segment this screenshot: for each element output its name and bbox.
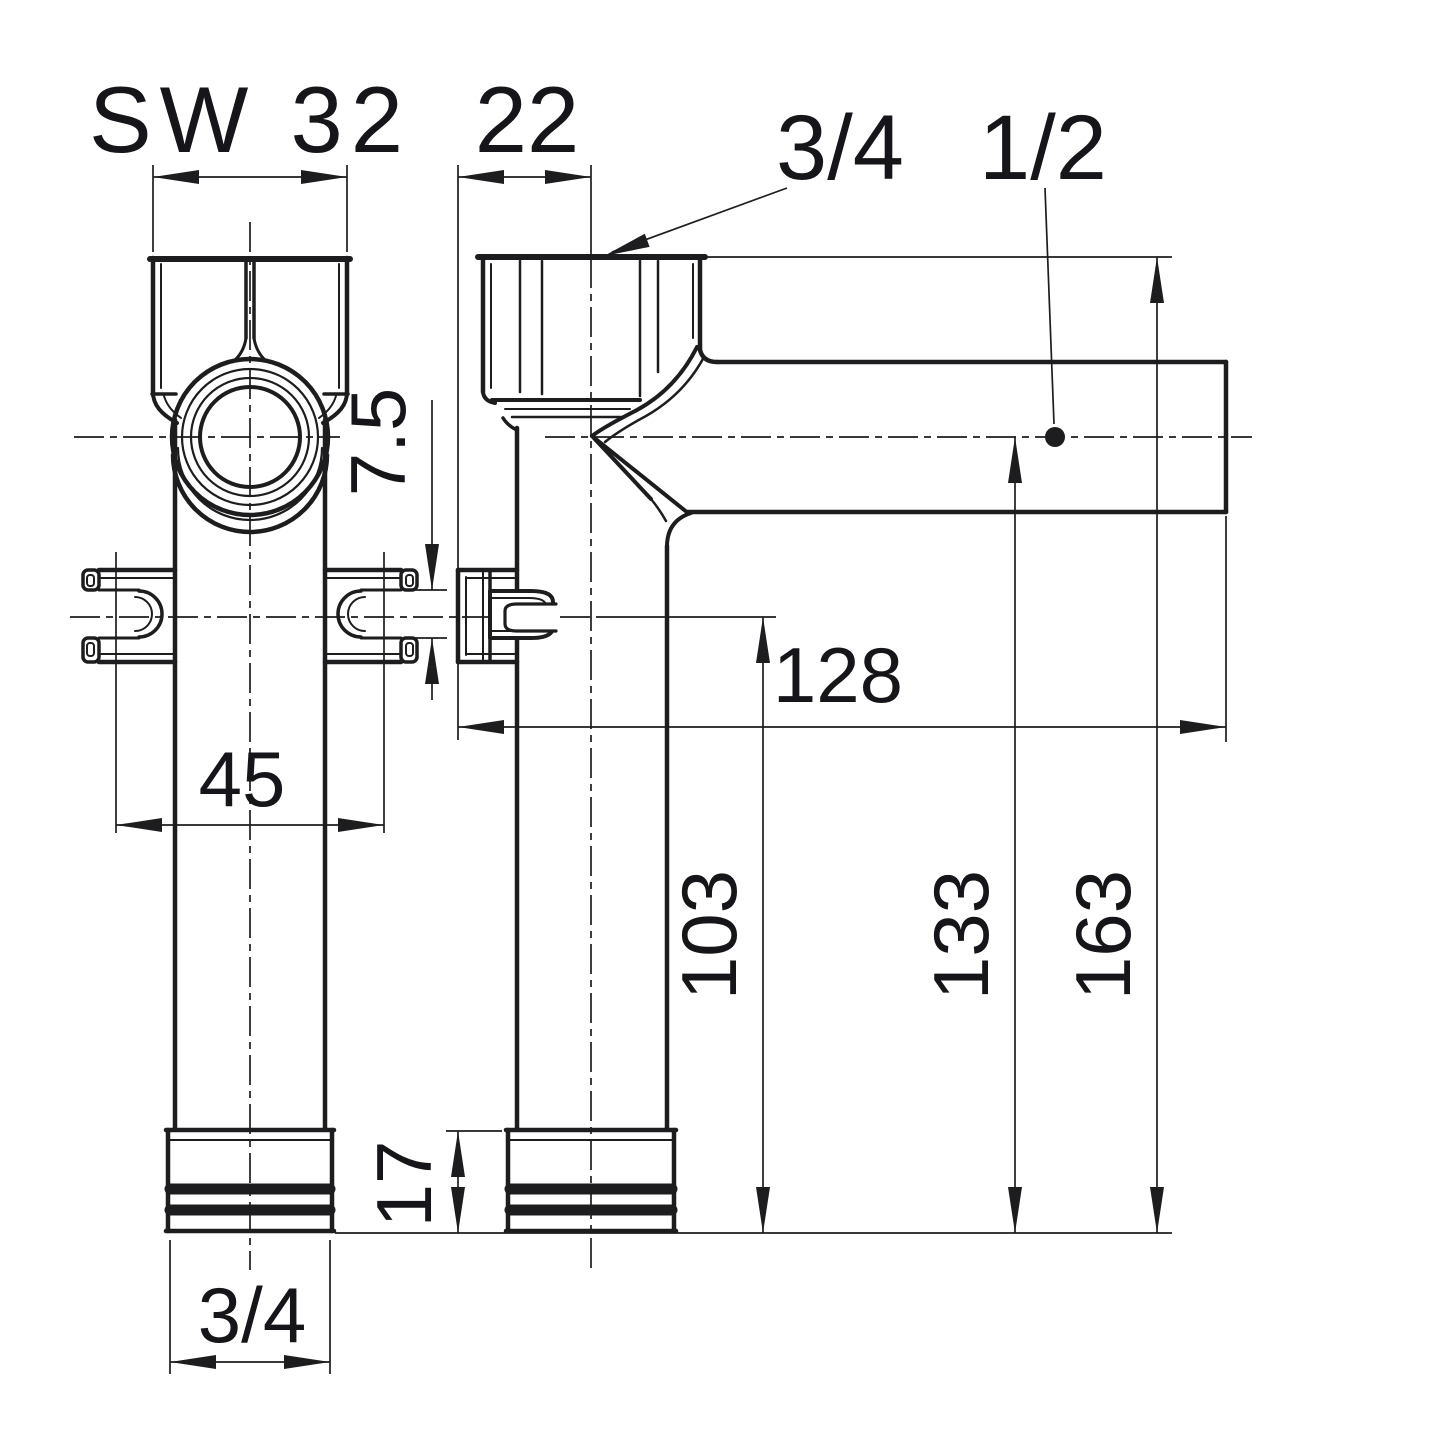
dim-label-bottom-thread: 3/4: [198, 1271, 306, 1359]
dim-label-slot-width: 7.5: [334, 388, 422, 496]
dim-label-wrench-size: SW 32: [89, 67, 411, 172]
dim-label-arm-reach: 128: [773, 631, 903, 719]
dim-label-wall-offset: 22: [475, 67, 580, 172]
dim-label-bracket-height: 103: [665, 870, 753, 1000]
dim-label-screw-spacing: 45: [199, 735, 286, 823]
dim-label-union-nut-height: 17: [360, 1141, 448, 1228]
dim-label-outlet-height: 133: [917, 870, 1005, 1000]
drawing-canvas: SW 32 22 3/4 1/2 7.5 128 45 103 133 163 …: [0, 0, 1440, 1440]
background: [0, 0, 1440, 1440]
dim-label-branch-thread: 1/2: [979, 97, 1107, 199]
branch-point-dot: [1045, 427, 1065, 447]
dim-label-total-height: 163: [1059, 870, 1147, 1000]
dim-label-top-thread: 3/4: [776, 97, 904, 199]
